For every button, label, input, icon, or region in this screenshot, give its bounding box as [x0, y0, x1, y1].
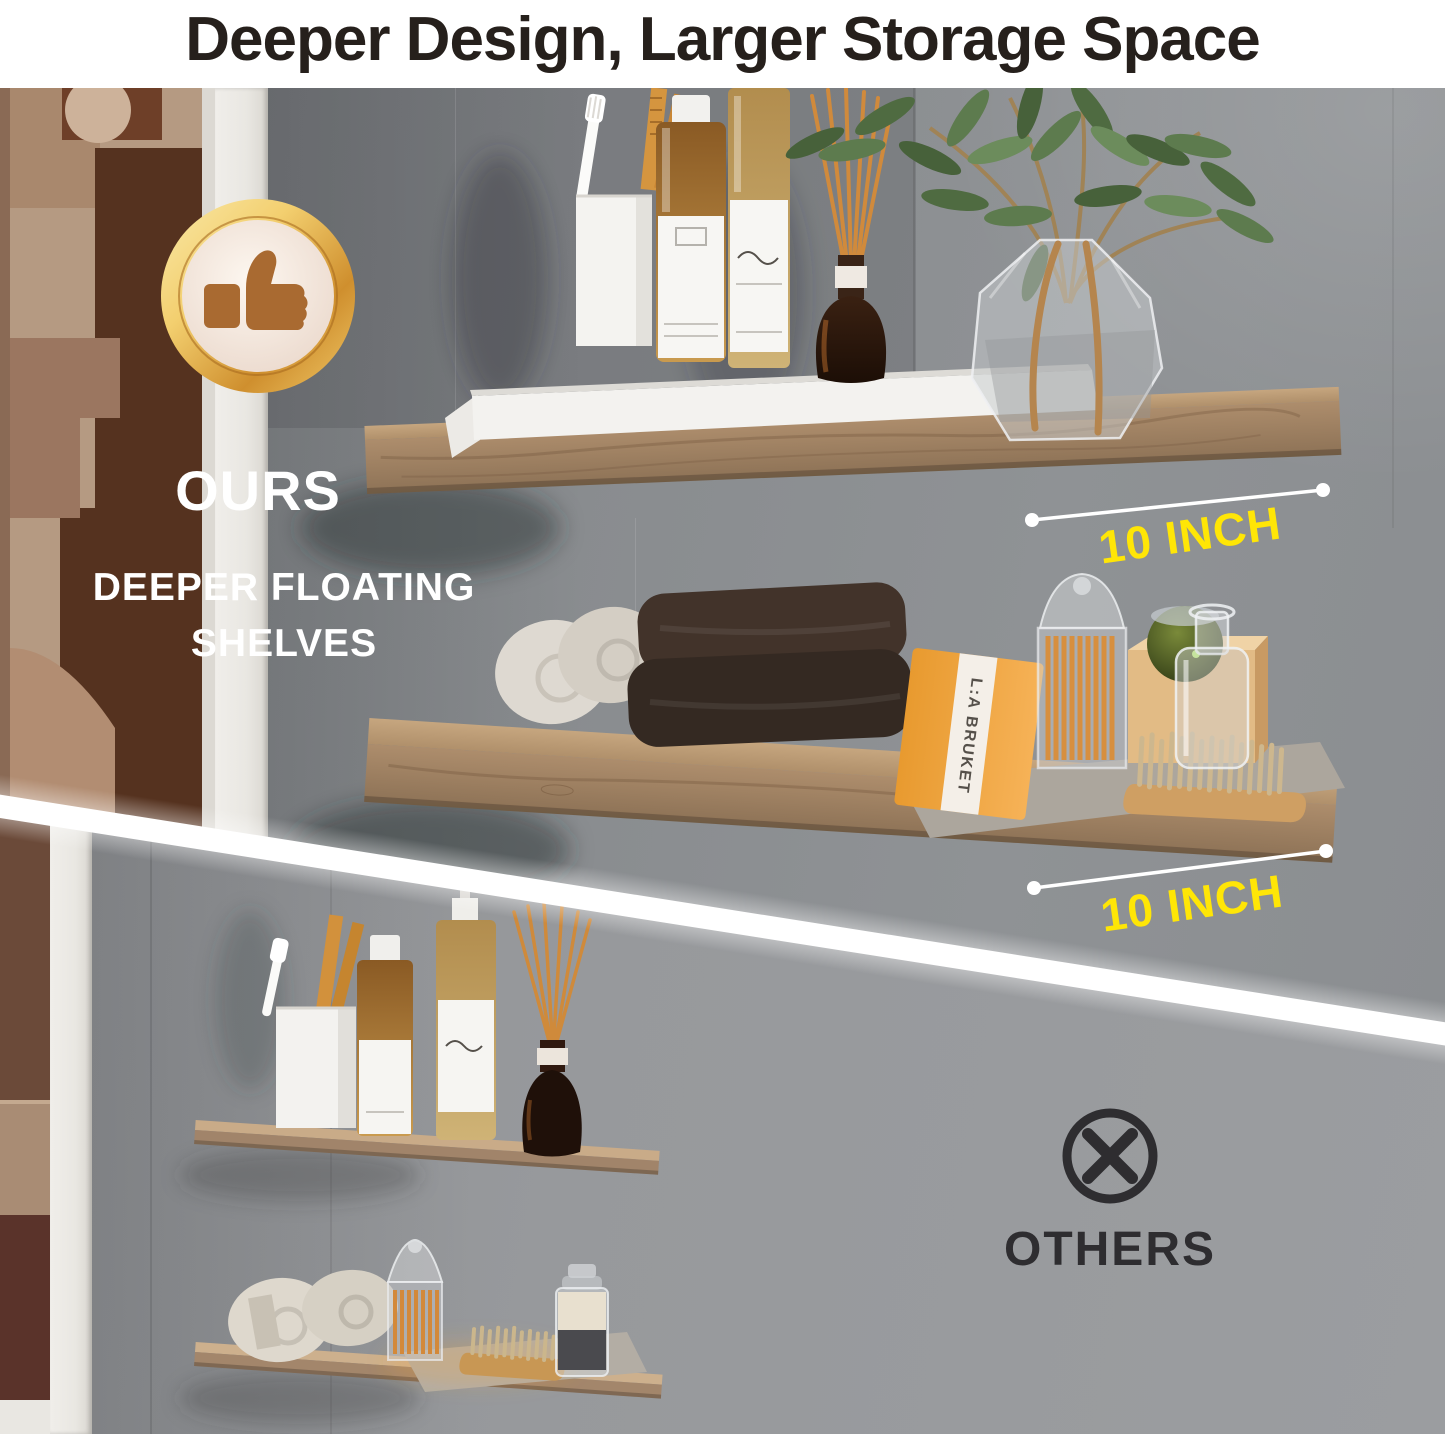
others-glass-bottle [556, 1264, 608, 1376]
others-bottle-1 [357, 935, 413, 1136]
thumbs-up-badge [158, 196, 358, 396]
ours-subtitle: DEEPER FLOATING SHELVES [88, 560, 480, 672]
ours-subtitle-line2: SHELVES [88, 616, 480, 672]
others-cup [276, 1008, 356, 1128]
wall-cast-shadow [452, 153, 548, 403]
others-label: OTHERS [960, 1222, 1260, 1277]
page-title: Deeper Design, Larger Storage Space [0, 4, 1445, 75]
fluted-jar [1038, 574, 1126, 768]
glass-vase [972, 240, 1162, 440]
others-bottle-2 [436, 880, 496, 1140]
folded-towels [626, 581, 914, 748]
under-shelf-shadow [180, 1372, 420, 1424]
wall-cast-shadow [215, 910, 285, 1090]
soap-box: L:A BRUKET [894, 648, 1044, 821]
cosmetic-bottle-1 [656, 95, 726, 362]
others-combs [316, 914, 364, 1012]
under-shelf-shadow [180, 1149, 420, 1201]
others-swab-jar [388, 1239, 442, 1360]
cosmetic-bottle-2 [728, 88, 790, 368]
product-comparison-image: L:A BRUKET [0, 0, 1445, 1434]
title-bar: Deeper Design, Larger Storage Space [0, 0, 1445, 88]
others-diffuser [514, 903, 590, 1157]
ours-subtitle-line1: DEEPER FLOATING [88, 560, 480, 616]
x-circle-icon [1058, 1104, 1162, 1208]
ours-label: OURS [108, 458, 408, 523]
